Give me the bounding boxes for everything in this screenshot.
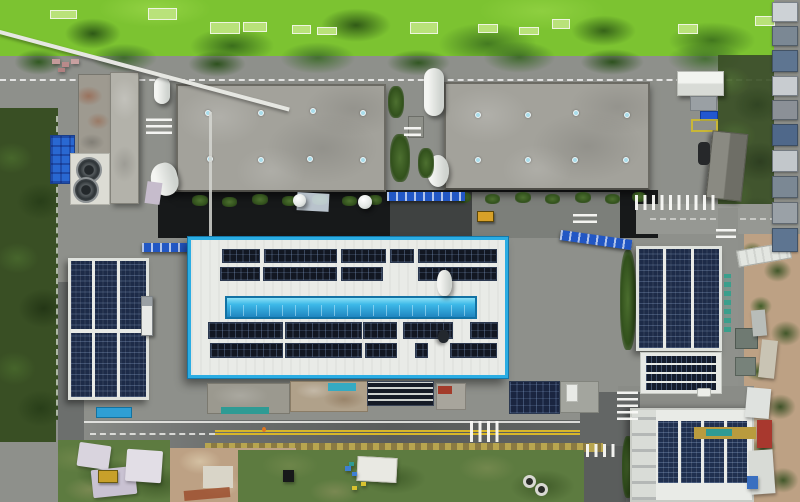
- skylight-dot: [573, 110, 579, 116]
- container-building: [772, 2, 798, 22]
- asphalt-light-patch: [472, 192, 620, 238]
- skylight-dot: [360, 157, 366, 163]
- skylight-dot: [525, 112, 531, 118]
- teal-canopy: [328, 383, 356, 391]
- roof-vent-stack: [437, 270, 452, 296]
- crosswalk-admin: [146, 117, 172, 134]
- roof-dark-vent: [438, 330, 449, 343]
- utility-hut: [735, 328, 758, 349]
- skylight-dot: [258, 157, 264, 163]
- white-truck: [141, 296, 153, 336]
- crosswalk-right-road: [716, 227, 736, 238]
- teal-fence: [724, 274, 731, 332]
- shrub: [620, 250, 636, 350]
- crosswalk-east-small: [573, 211, 597, 223]
- road-center-white-dashes: [90, 433, 215, 435]
- skylight-dot: [310, 108, 316, 114]
- container-building: [772, 100, 798, 120]
- white-equipment: [566, 384, 578, 402]
- skylight-dot: [360, 110, 366, 116]
- warehouse-1: [176, 84, 386, 192]
- coiled-material-ring: [523, 475, 536, 488]
- alley-tank-2: [427, 155, 449, 187]
- cooling-fan: [73, 177, 99, 203]
- skylight-dot: [624, 112, 630, 118]
- crosswalk-main-gate: [635, 195, 718, 210]
- crosswalk-junction-north: [617, 391, 638, 420]
- yellow-excavator: [477, 211, 494, 222]
- road-center-yellow-lines: [215, 430, 583, 435]
- container-building: [772, 176, 798, 198]
- warehouse-2: [444, 82, 650, 190]
- gatehouse-equipment: [690, 96, 717, 111]
- white-car: [697, 388, 711, 397]
- container-building: [772, 150, 798, 172]
- right-solar-building-south: [630, 408, 754, 502]
- worker-orange-vest: [262, 427, 266, 432]
- skylight-dot: [307, 156, 313, 162]
- concrete-pad: [203, 466, 233, 488]
- container-building: [772, 76, 798, 96]
- building-wall-band: [632, 410, 656, 500]
- shrub: [388, 86, 404, 118]
- ground-solar-array-rows: [367, 381, 434, 406]
- black-car: [698, 142, 710, 165]
- alley-tank-1: [424, 68, 444, 116]
- admin-wing-west: [78, 74, 112, 160]
- skylight-dot: [258, 110, 264, 116]
- white-sphere-tank: [293, 194, 306, 207]
- aerial-photo-industrial-facility: [0, 0, 800, 502]
- ground-solar-array-grid: [509, 381, 560, 414]
- teal-accent-east: [706, 429, 732, 436]
- skylight-dot: [623, 157, 629, 163]
- red-roof-panel: [438, 386, 452, 394]
- crosswalk-junction-west: [586, 444, 617, 457]
- skylight-dot: [525, 157, 531, 163]
- roof-walkway: [691, 249, 694, 348]
- teal-roof-strip: [221, 407, 269, 414]
- gray-gable-building: [706, 130, 749, 201]
- blue-skylight-strip: [225, 296, 477, 319]
- lot-white-tarp: [356, 456, 397, 483]
- crosswalk-bottom-road: [470, 421, 504, 442]
- right-solar-building-north: [636, 246, 722, 351]
- coiled-material-ring: [535, 483, 548, 496]
- container-building: [772, 26, 798, 46]
- bottom-road-edge-line: [58, 421, 610, 423]
- roof-walkway: [663, 249, 666, 348]
- lavender-tarp: [145, 181, 163, 205]
- container-building: [772, 124, 798, 146]
- white-silo: [154, 77, 170, 104]
- skylight-dot: [475, 157, 481, 163]
- pipeline-riser: [209, 112, 212, 236]
- yellow-machine: [98, 470, 118, 483]
- blue-canopy: [96, 407, 132, 418]
- skylight-strip-panels: [230, 305, 472, 316]
- skylight-dot: [572, 157, 578, 163]
- shrub: [390, 134, 410, 182]
- left-solar-building: [68, 258, 149, 400]
- warehouse-2-skylights: [446, 84, 648, 188]
- utility-hut: [735, 357, 756, 376]
- admin-wing-east: [110, 72, 139, 204]
- skylight-dot: [475, 112, 481, 118]
- container-building: [772, 50, 798, 72]
- roof-walkway: [71, 329, 146, 333]
- white-sphere-tank: [358, 195, 372, 209]
- crosswalk-alley: [404, 123, 421, 136]
- blue-pipe-rack-center: [387, 192, 465, 201]
- gatehouse-canopy: [677, 71, 724, 96]
